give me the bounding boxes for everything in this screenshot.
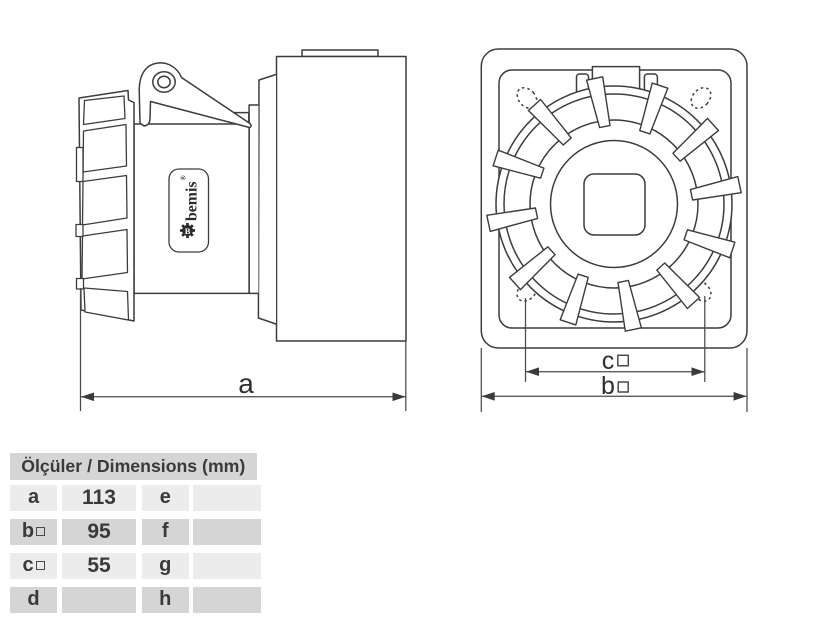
svg-text:a: a [238, 368, 254, 399]
svg-text:bemis: bemis [184, 182, 201, 222]
svg-text:®: ® [180, 175, 188, 181]
svg-text:b: b [601, 372, 615, 400]
svg-text:c: c [602, 347, 615, 375]
svg-text:B: B [185, 226, 191, 236]
